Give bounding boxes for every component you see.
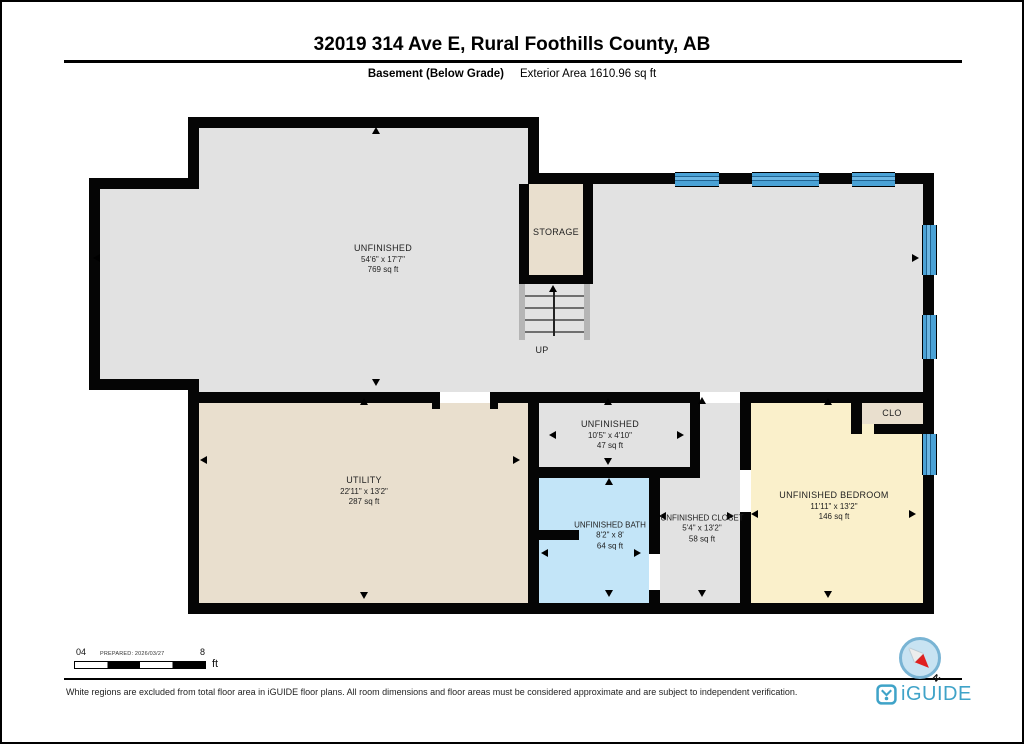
dimension-arrow-icon (698, 397, 706, 404)
label-storage: STORAGE (533, 227, 579, 239)
wall (851, 424, 862, 434)
dimension-arrow-icon (513, 456, 520, 464)
label-unfinished-small: UNFINISHED 10'5" x 4'10" 47 sq ft (581, 419, 639, 451)
wall (690, 392, 700, 478)
label-up: UP (535, 345, 548, 357)
scale-unit-label: ft (212, 658, 218, 670)
window-icon (752, 172, 819, 187)
dimension-arrow-icon (698, 590, 706, 597)
wall (649, 590, 660, 614)
scale-bar (74, 661, 206, 669)
floor-subtitle: Basement (Below Grade)Exterior Area 1610… (2, 68, 1022, 80)
dimension-arrow-icon (605, 478, 613, 485)
label-closet: UNFINISHED CLOSET 5'4" x 13'2" 58 sq ft (660, 513, 743, 544)
page-title: 32019 314 Ave E, Rural Foothills County,… (2, 34, 1022, 56)
label-bedroom: UNFINISHED BEDROOM 11'11" x 13'2" 146 sq… (779, 490, 888, 522)
scale-start-label: 04 (76, 647, 86, 657)
stair-up-arrow-head (549, 285, 557, 292)
window-icon (922, 225, 937, 275)
wall (490, 392, 699, 403)
footer-divider (64, 678, 962, 680)
iguide-logo-icon (876, 684, 897, 705)
room-region-unfinished-right (539, 184, 923, 392)
window-icon (922, 434, 937, 475)
dimension-arrow-icon (912, 254, 919, 262)
dimension-arrow-icon (605, 590, 613, 597)
room-region-unfinished-notch (100, 189, 199, 379)
floor-label: Basement (Below Grade) (368, 68, 504, 80)
dimension-arrow-icon (824, 398, 832, 405)
wall (89, 178, 199, 189)
wall (89, 379, 199, 390)
window-icon (852, 172, 895, 187)
wall (432, 403, 440, 409)
dimension-arrow-icon (360, 592, 368, 599)
label-clo: CLO (882, 408, 901, 420)
dimension-arrow-icon (751, 510, 758, 518)
window-icon (675, 172, 719, 187)
dimension-arrow-icon (677, 431, 684, 439)
dimension-arrow-icon (360, 398, 368, 405)
wall (740, 392, 934, 403)
disclaimer-text: White regions are excluded from total fl… (66, 687, 797, 697)
dimension-arrow-icon (549, 431, 556, 439)
dimension-arrow-icon (909, 510, 916, 518)
room-region-closet-upper (700, 403, 740, 478)
wall (490, 403, 498, 409)
dimension-arrow-icon (824, 591, 832, 598)
wall (583, 184, 593, 282)
wall (188, 603, 934, 614)
wall (188, 392, 440, 403)
iguide-logo-text: iGUIDE (901, 683, 972, 706)
wall (528, 392, 539, 614)
wall (539, 530, 579, 540)
dimension-arrow-icon (541, 549, 548, 557)
window-icon (922, 315, 937, 359)
wall (89, 178, 100, 390)
iguide-logo: iGUIDE (876, 683, 972, 706)
compass-icon: N (898, 636, 942, 680)
prepared-date-label: PREPARED: 2026/03/27 (100, 651, 164, 657)
label-unfinished-main: UNFINISHED 54'6" x 17'7" 769 sq ft (354, 243, 412, 275)
label-bath: UNFINISHED BATH 8'2" x 8' 64 sq ft (574, 520, 646, 551)
header-divider (64, 60, 962, 63)
dimension-arrow-icon (372, 379, 380, 386)
wall (874, 424, 923, 434)
floorplan-page: 32019 314 Ave E, Rural Foothills County,… (0, 0, 1024, 744)
label-utility: UTILITY 22'11" x 13'2" 287 sq ft (340, 475, 388, 507)
wall (188, 117, 539, 128)
wall (519, 275, 593, 284)
dimension-arrow-icon (200, 456, 207, 464)
wall (528, 467, 700, 478)
dimension-arrow-icon (604, 398, 612, 405)
wall (519, 184, 529, 282)
dimension-arrow-icon (372, 127, 380, 134)
wall (740, 392, 751, 470)
stair-rail-right (584, 284, 590, 340)
dimension-arrow-icon (604, 458, 612, 465)
exterior-area-label: Exterior Area 1610.96 sq ft (520, 68, 656, 80)
stair-up-arrow-shaft (553, 292, 555, 336)
scale-end-label: 8 (200, 647, 205, 657)
dimension-arrow-icon (93, 254, 100, 262)
wall (188, 379, 199, 614)
